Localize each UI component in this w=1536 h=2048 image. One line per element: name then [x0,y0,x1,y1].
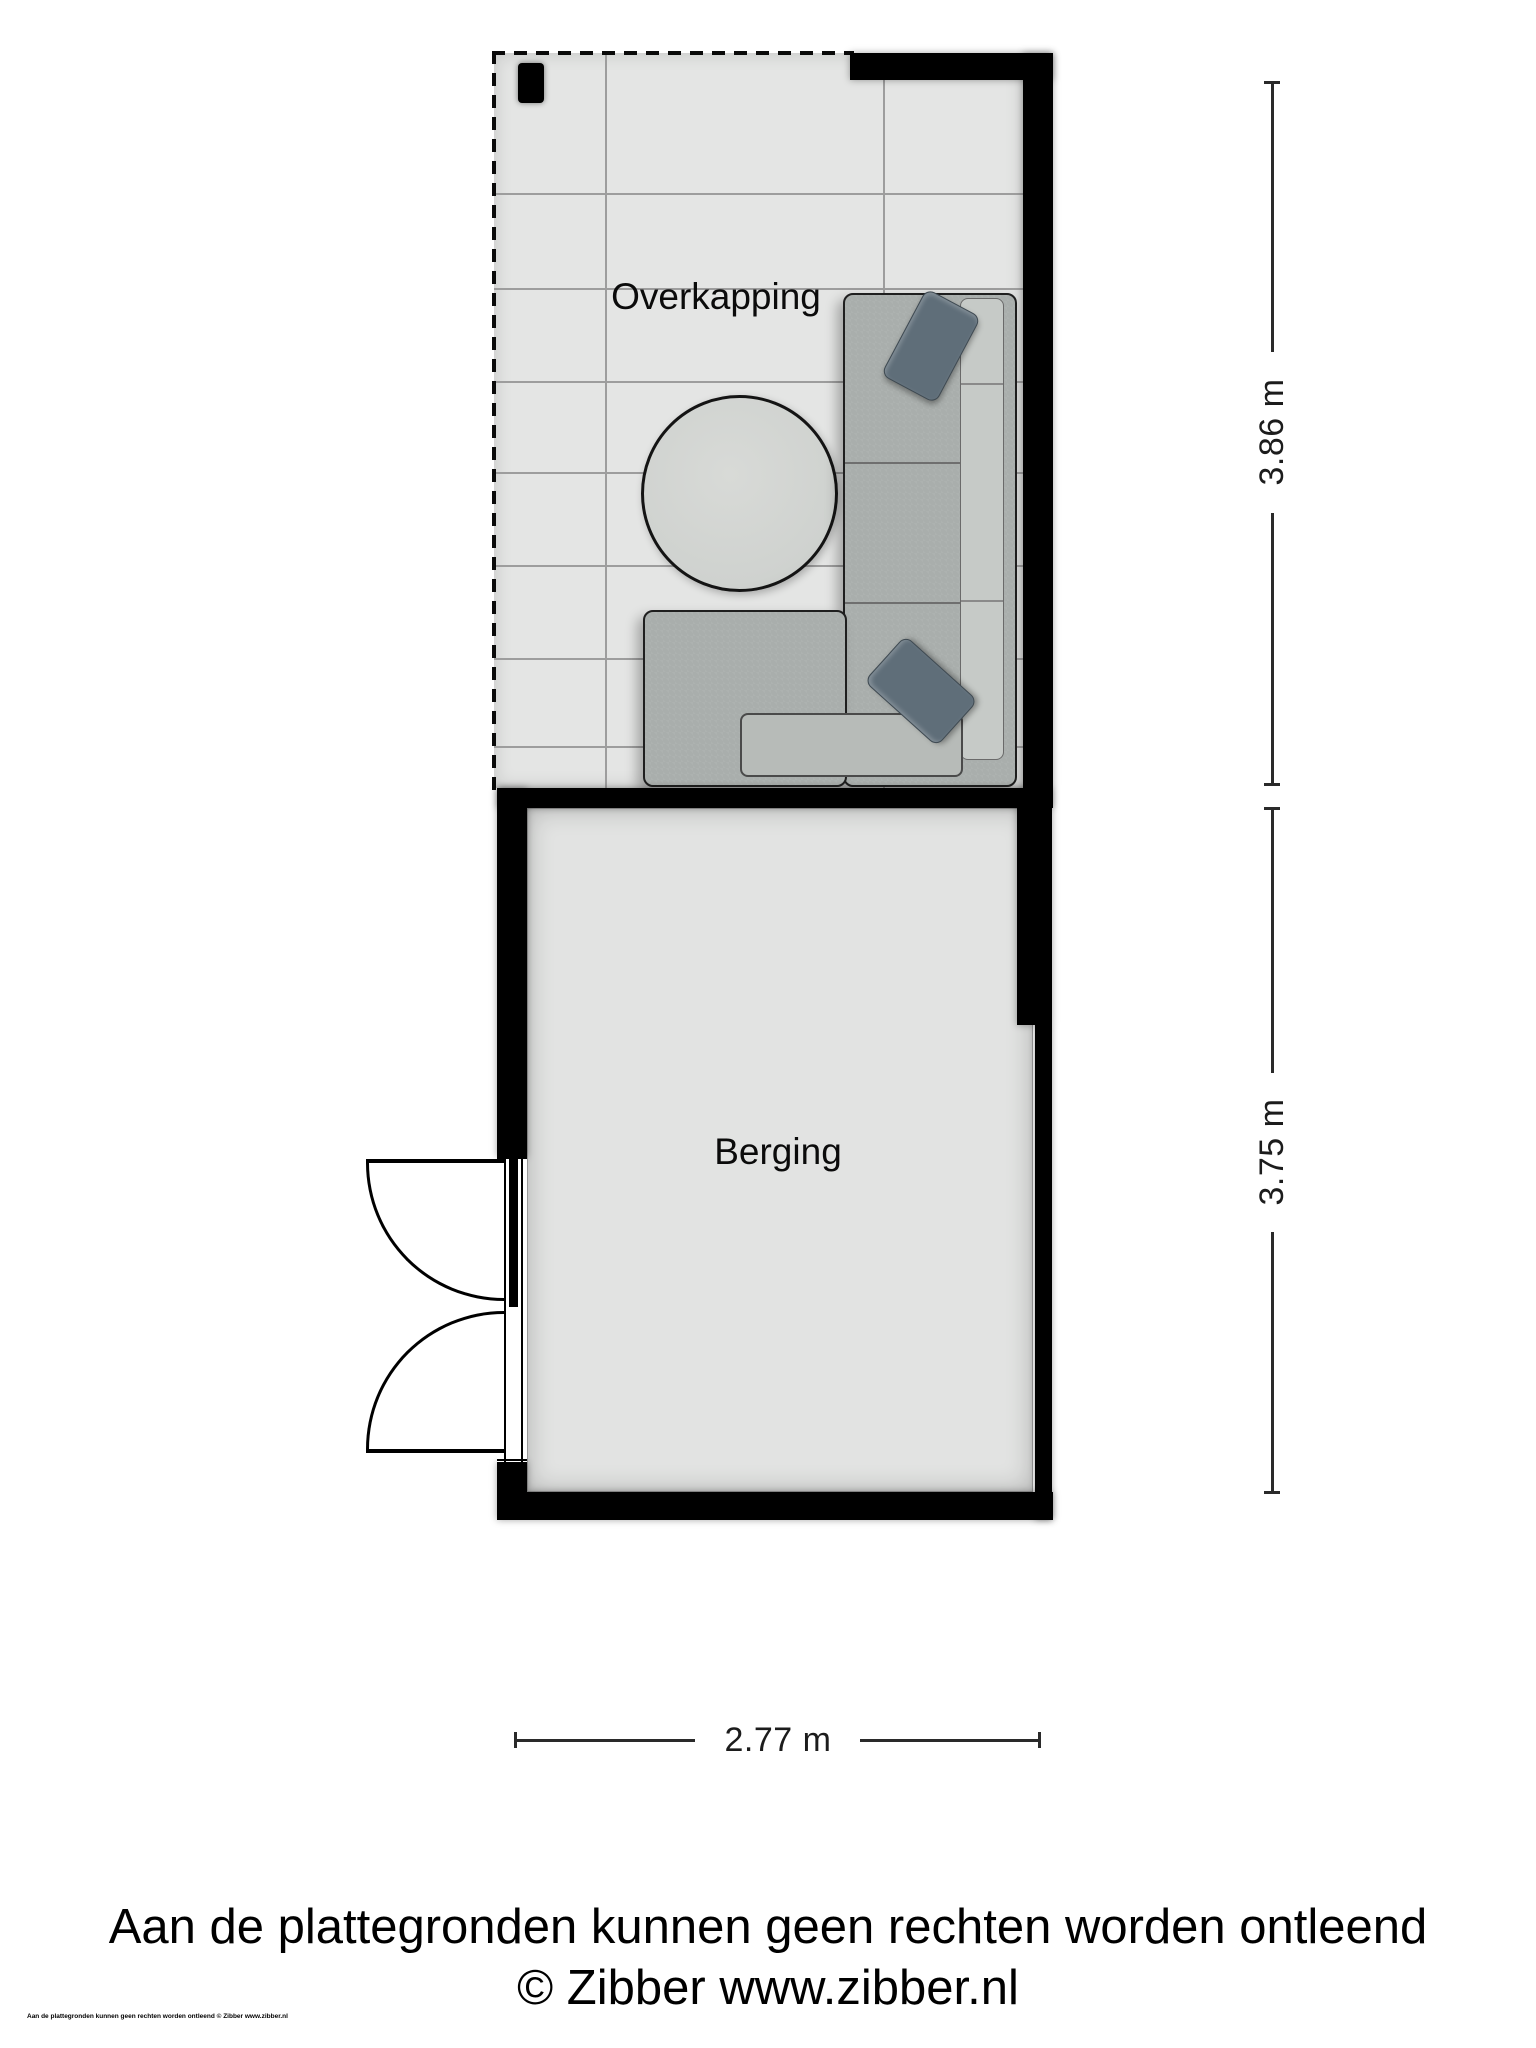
floorplan-page: Overkapping Berging 3.86 m 3.75 m 2.77 m… [0,0,1536,2048]
dimension-line-277 [860,1739,1040,1742]
wall-right-lower [1035,1025,1052,1520]
door-jamb-line [521,1157,523,1462]
room-label-overkapping: Overkapping [566,277,866,317]
dimension-line-386 [1271,513,1274,785]
wall-left-upper [497,788,527,1157]
sofa-cushion-divider [845,462,960,464]
dimension-tick [1038,1732,1041,1748]
footer-micro-print: Aan de plattegronden kunnen geen rechten… [27,2013,288,2020]
dimension-label-375: 3.75 m [1252,1092,1292,1212]
dimension-tick [514,1732,517,1748]
footer-credit: © Zibber www.zibber.nl [0,1960,1536,2016]
sofa-cushion-divider [845,602,960,604]
sofa-backrest-divider [961,600,1003,602]
dimension-tick [1264,807,1280,810]
sofa-backrest-divider [961,383,1003,385]
wall-right-middle [1017,788,1052,1025]
dimension-tick [1264,783,1280,786]
door-frame-cap [497,1459,527,1461]
dimension-label-386: 3.86 m [1252,372,1292,492]
boundary-dashed-left [492,51,496,790]
door-swing-arc-top [366,1163,504,1301]
support-post [518,63,544,103]
wall-middle-divider [497,788,1053,808]
dimension-line-277 [515,1739,695,1742]
footer-disclaimer: Aan de plattegronden kunnen geen rechten… [0,1899,1536,1955]
door-panel [509,1159,518,1307]
wall-right-upper [1023,53,1053,788]
floor-grid-line-v [605,53,607,788]
door-jamb-line [504,1157,506,1462]
boundary-dashed-top [492,51,854,55]
dimension-label-277: 2.77 m [698,1720,858,1760]
wall-left-stub [497,1462,527,1492]
dimension-line-386 [1271,82,1274,352]
dimension-line-375 [1271,1232,1274,1493]
wall-bottom [497,1492,1053,1520]
coffee-table [641,395,838,592]
floor-grid-line-h [494,193,1023,195]
dimension-tick [1264,81,1280,84]
dimension-line-375 [1271,808,1274,1073]
room-label-berging: Berging [628,1132,928,1172]
dimension-tick [1264,1491,1280,1494]
door-leaf-bottom [366,1449,506,1453]
door-swing-arc-bottom [366,1311,504,1449]
